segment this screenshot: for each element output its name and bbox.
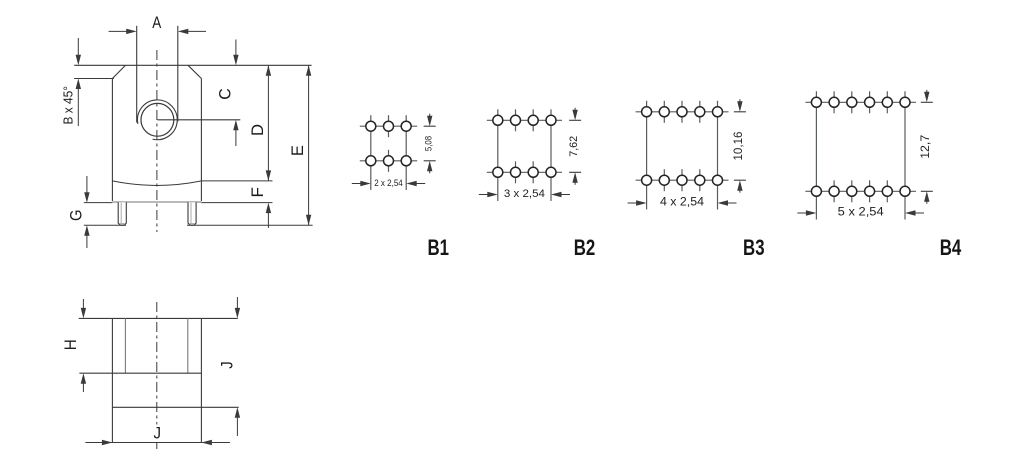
svg-text:A: A xyxy=(152,13,162,32)
svg-text:B4: B4 xyxy=(940,235,962,260)
svg-text:12,7: 12,7 xyxy=(920,135,932,159)
svg-text:D: D xyxy=(249,124,267,136)
svg-text:10,16: 10,16 xyxy=(733,132,745,161)
svg-text:5 x 2,54: 5 x 2,54 xyxy=(838,207,885,219)
svg-text:G: G xyxy=(67,210,85,222)
svg-text:5,08: 5,08 xyxy=(424,136,434,151)
svg-text:B1: B1 xyxy=(427,235,449,260)
svg-text:H: H xyxy=(62,339,80,350)
svg-text:B x 45°: B x 45° xyxy=(62,86,76,125)
svg-text:B3: B3 xyxy=(743,235,765,260)
svg-text:F: F xyxy=(249,187,267,198)
svg-text:4 x 2,54: 4 x 2,54 xyxy=(660,197,705,209)
svg-text:J: J xyxy=(153,424,161,443)
svg-text:3 x 2,54: 3 x 2,54 xyxy=(504,188,545,200)
svg-text:J: J xyxy=(218,361,237,369)
svg-text:E: E xyxy=(289,145,307,156)
svg-text:2 x 2,54: 2 x 2,54 xyxy=(374,178,403,188)
svg-text:C: C xyxy=(217,88,235,100)
svg-text:7,62: 7,62 xyxy=(568,136,580,157)
svg-text:B2: B2 xyxy=(574,235,596,260)
